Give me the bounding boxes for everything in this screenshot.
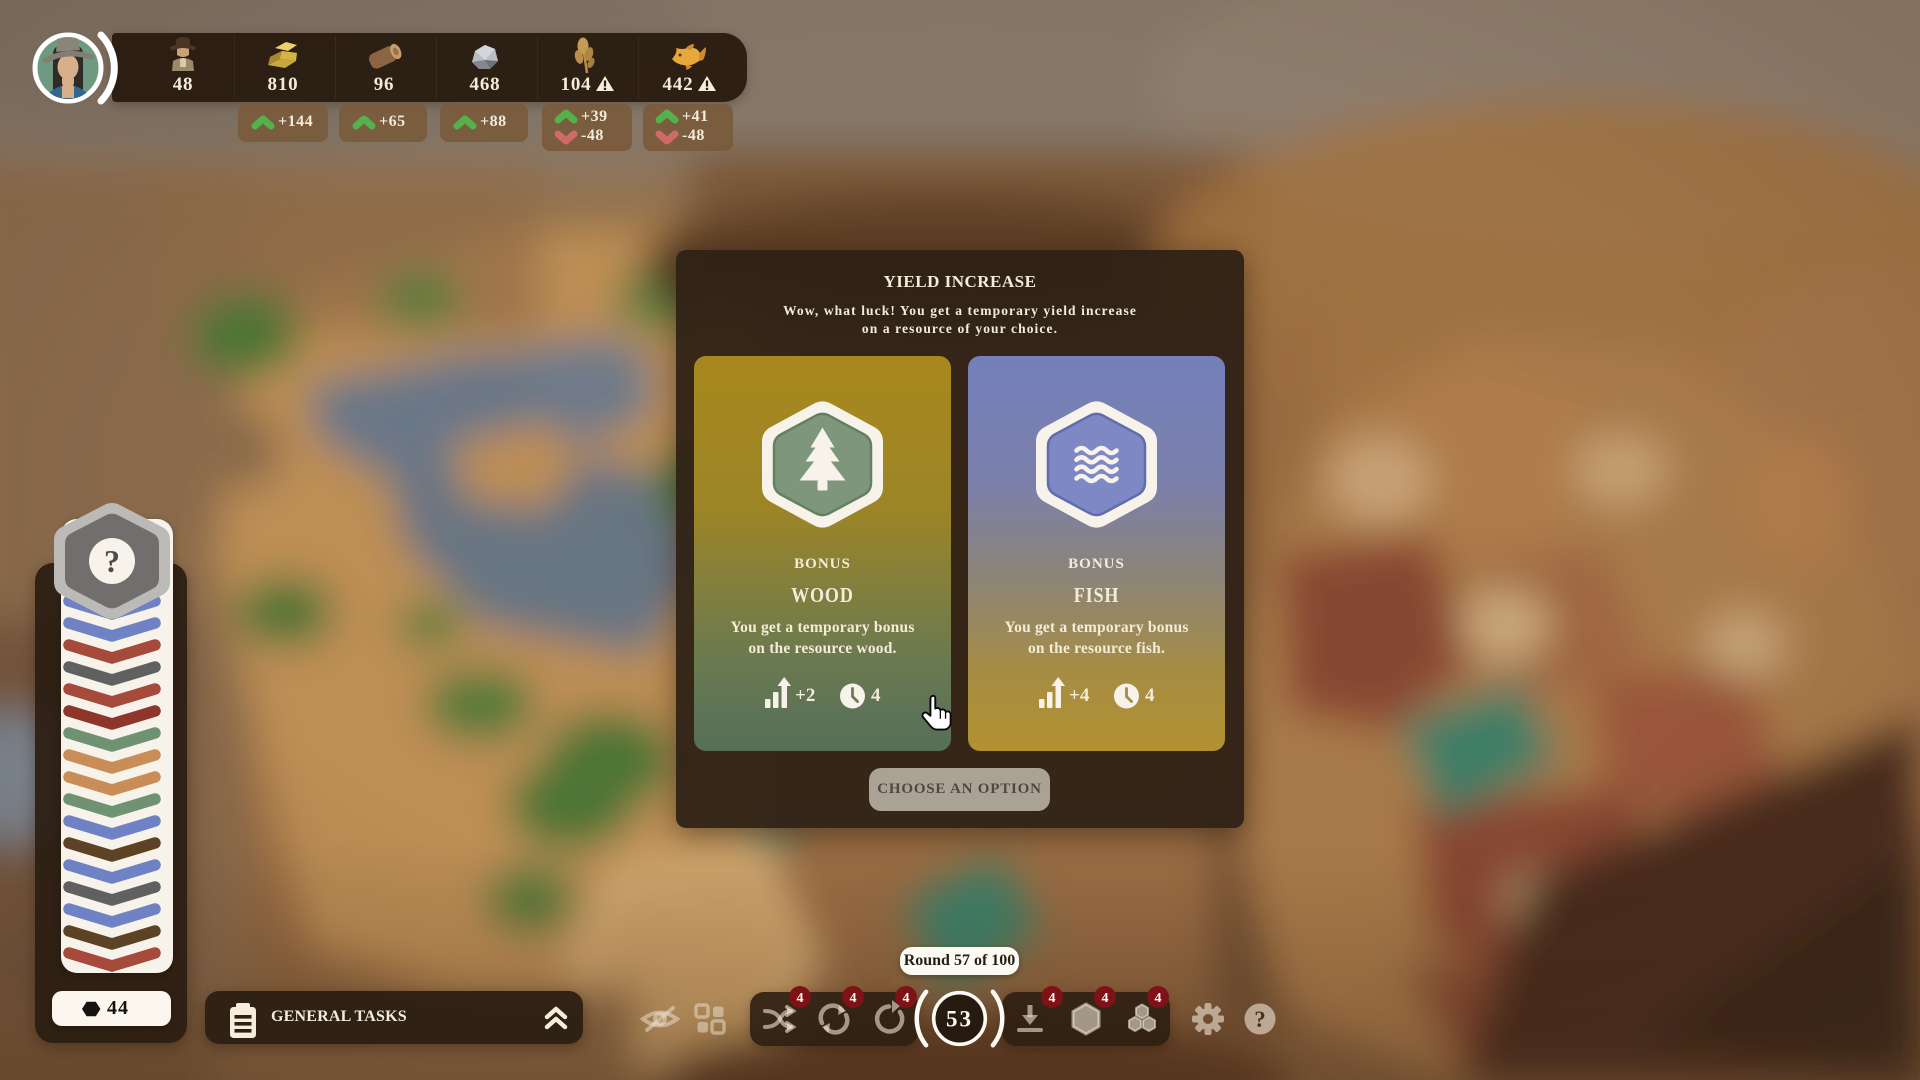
svg-text:?: ? <box>104 543 120 579</box>
svg-text:4: 4 <box>850 991 857 1006</box>
svg-text:?: ? <box>1254 1007 1266 1032</box>
svg-text:4: 4 <box>903 991 910 1006</box>
svg-text:4: 4 <box>1155 991 1162 1006</box>
svg-text:4: 4 <box>1049 991 1056 1006</box>
svg-text:4: 4 <box>1102 991 1109 1006</box>
svg-text:53: 53 <box>946 1007 973 1032</box>
svg-text:4: 4 <box>797 991 804 1006</box>
